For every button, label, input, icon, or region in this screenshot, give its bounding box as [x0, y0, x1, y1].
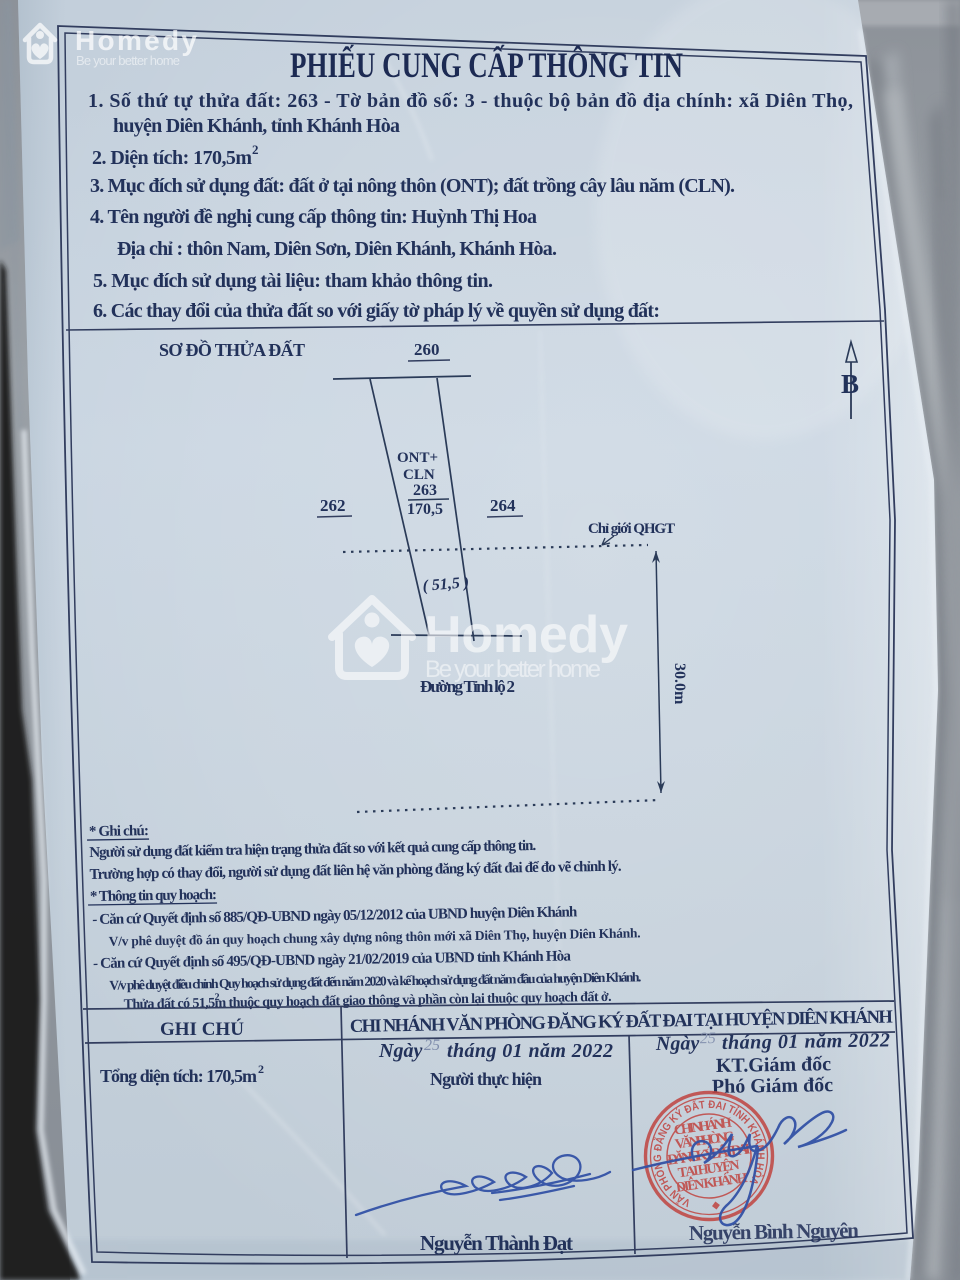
svg-text:SƠ ĐỒ THỬA ĐẤT: SƠ ĐỒ THỬA ĐẤT — [159, 339, 305, 360]
svg-text:4. Tên người đề nghị cung cấp: 4. Tên người đề nghị cung cấp thông tin:… — [90, 206, 537, 228]
svg-text:Ngày: Ngày — [378, 1040, 422, 1062]
svg-text:264: 264 — [490, 496, 516, 515]
svg-text:B: B — [841, 369, 859, 399]
svg-text:262: 262 — [320, 496, 346, 515]
svg-text:Địa chỉ : thôn Nam, Diên Sơn,: Địa chỉ : thôn Nam, Diên Sơn, Diên Khánh… — [117, 238, 557, 260]
svg-text:huyện Diên Khánh, tỉnh Khánh H: huyện Diên Khánh, tỉnh Khánh Hòa — [113, 115, 400, 137]
svg-text:2: 2 — [214, 992, 219, 1003]
svg-text:Homedy: Homedy — [75, 25, 197, 56]
svg-text:170,5: 170,5 — [407, 501, 443, 518]
svg-text:30.0m: 30.0m — [671, 663, 688, 705]
svg-text:25: 25 — [700, 1030, 716, 1047]
svg-text:Be your better home: Be your better home — [425, 656, 601, 683]
svg-text:Nguyễn Bình Nguyên: Nguyễn Bình Nguyên — [689, 1218, 860, 1245]
svg-text:6. Các thay đổi của thửa đất s: 6. Các thay đổi của thửa đất so với giấy… — [93, 300, 660, 322]
svg-text:2: 2 — [252, 142, 259, 157]
svg-text:* Ghi chú:: * Ghi chú: — [89, 823, 149, 840]
svg-text:tháng 01 năm 2022: tháng 01 năm 2022 — [722, 1029, 890, 1054]
svg-text:2. Diện tích: 170,5m: 2. Diện tích: 170,5m — [92, 147, 252, 169]
svg-text:5. Mục đích sử dụng tài liệu:: 5. Mục đích sử dụng tài liệu: tham khảo … — [93, 270, 493, 292]
svg-text:PHIẾU CUNG CẤP THÔNG TIN: PHIẾU CUNG CẤP THÔNG TIN — [290, 45, 683, 85]
svg-text:263: 263 — [413, 482, 437, 499]
svg-text:Ngày: Ngày — [655, 1032, 700, 1055]
svg-text:Nguyễn Thành Đạt: Nguyễn Thành Đạt — [420, 1231, 573, 1255]
svg-text:Người thực hiện: Người thực hiện — [430, 1069, 542, 1089]
svg-text:Tổng diện tích: 170,5m: Tổng diện tích: 170,5m — [100, 1066, 257, 1086]
svg-text:GHI CHÚ: GHI CHÚ — [160, 1018, 244, 1040]
svg-text:3. Mục đích sử dụng đất: đất ở: 3. Mục đích sử dụng đất: đất ở tại nông … — [90, 175, 735, 197]
svg-text:Be your better home: Be your better home — [76, 53, 180, 68]
svg-text:CLN: CLN — [403, 467, 435, 483]
svg-text:Chỉ giới QHGT: Chỉ giới QHGT — [588, 521, 675, 537]
svg-text:25: 25 — [424, 1037, 440, 1054]
svg-text:ONT+: ONT+ — [397, 450, 438, 466]
svg-text:1. Số thứ tự thửa đất: 263 - T: 1. Số thứ tự thửa đất: 263 - Tờ bản đồ s… — [88, 90, 853, 112]
svg-text:* Thông tin quy hoạch:: * Thông tin quy hoạch: — [90, 887, 217, 905]
svg-text:260: 260 — [414, 340, 440, 359]
svg-text:tháng 01 năm 2022: tháng 01 năm 2022 — [447, 1040, 613, 1062]
svg-text:2: 2 — [258, 1062, 264, 1076]
